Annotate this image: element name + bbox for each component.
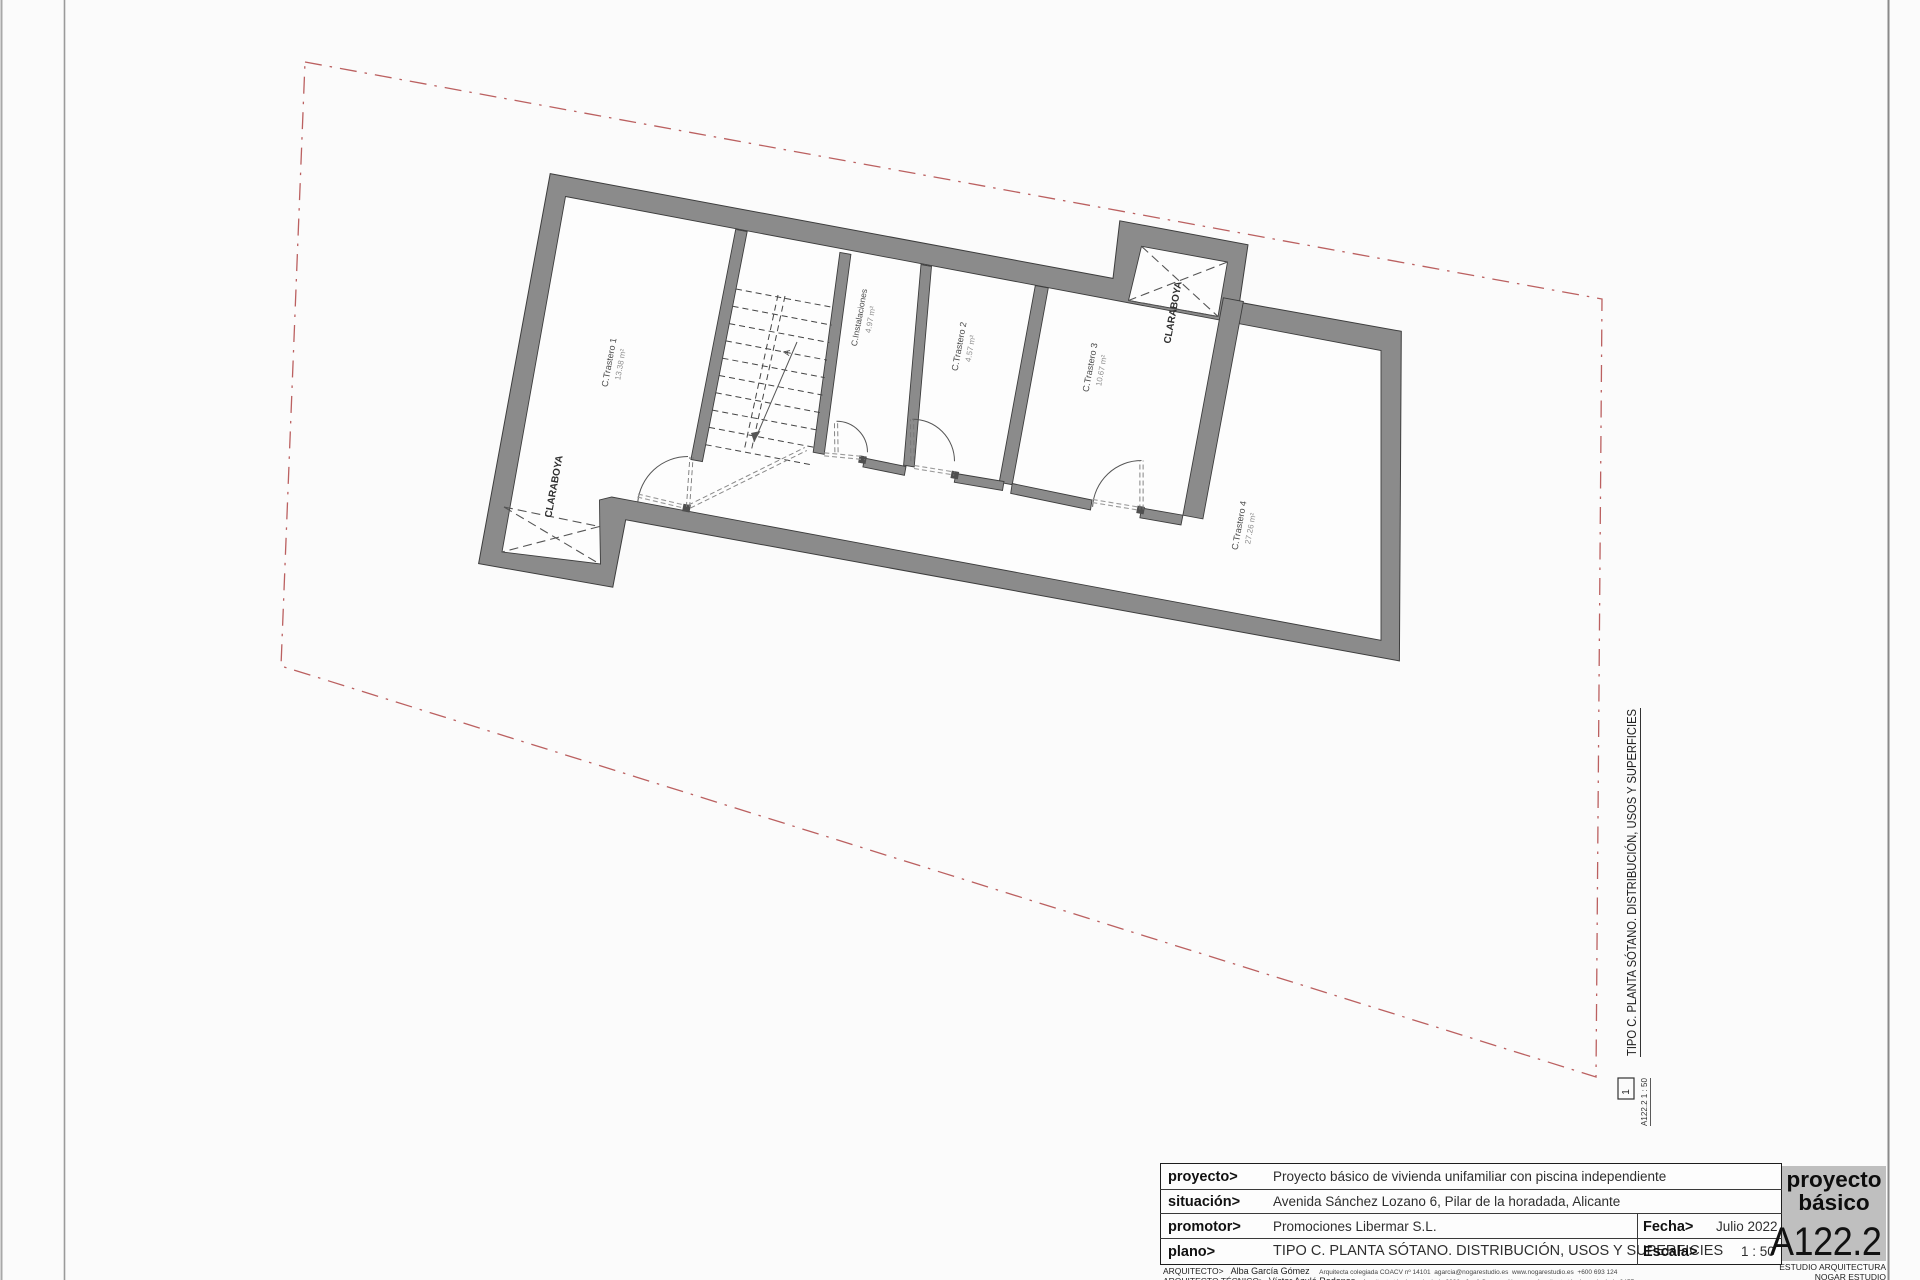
svg-text:TIPO C. PLANTA SÓTANO. DISTRIB: TIPO C. PLANTA SÓTANO. DISTRIBUCIÓN, USO… [1624, 709, 1639, 1056]
svg-text:1: 1 [1621, 1089, 1632, 1095]
svg-text:A122.2 1 : 50: A122.2 1 : 50 [1639, 1078, 1649, 1126]
